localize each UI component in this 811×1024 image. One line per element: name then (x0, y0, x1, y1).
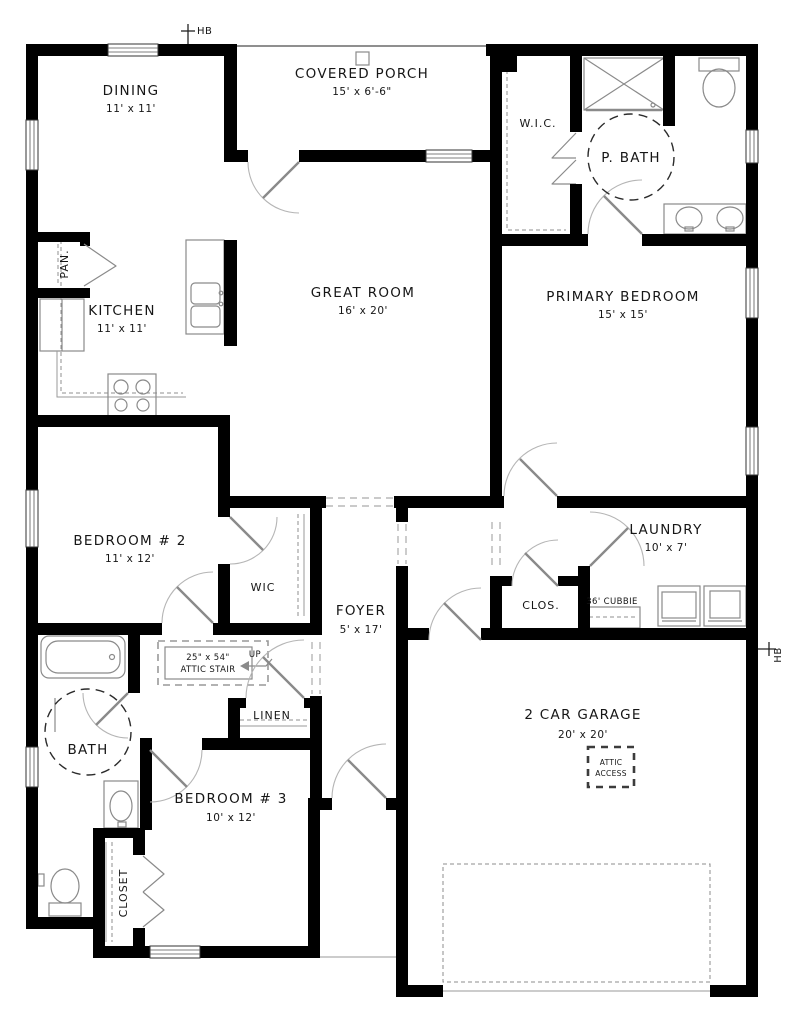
room-dims-bedroom2: 11' x 12' (105, 553, 155, 565)
room-label-primary-bedroom: PRIMARY BEDROOM (546, 289, 699, 305)
room-label-bedroom2: BEDROOM # 2 (73, 533, 186, 549)
door-swing-primary-bath (588, 180, 642, 234)
door-swing-front-entry (332, 744, 386, 798)
wall (213, 623, 322, 635)
door-swing-bedroom2 (162, 572, 213, 623)
label-cubbie: 36' CUBBIE (586, 597, 638, 607)
wall (93, 829, 105, 958)
label-attic-stair-dims: 25" x 54" (186, 653, 230, 663)
double-vanity (664, 204, 746, 234)
wall (310, 696, 322, 810)
room-label-great-room: GREAT ROOM (311, 285, 415, 301)
wall (228, 698, 246, 708)
attic-stair-unit (158, 641, 268, 685)
room-label-bath: BATH (67, 742, 108, 758)
wall (26, 44, 38, 929)
cubbie-bench (586, 607, 640, 628)
wic-shelving (507, 70, 566, 230)
room-dims-laundry: 10' x 7' (645, 542, 688, 554)
wall (396, 985, 443, 997)
primary-toilet (699, 58, 739, 107)
wall (224, 240, 237, 346)
window (26, 120, 38, 170)
bathtub (41, 636, 125, 678)
wall (202, 738, 322, 750)
room-dims-foyer: 5' x 17' (340, 624, 383, 636)
range-stove (108, 374, 156, 416)
wall (663, 56, 675, 126)
wall (490, 576, 502, 640)
wall (558, 576, 590, 586)
refrigerator (40, 299, 84, 351)
room-label-bedroom3: BEDROOM # 3 (174, 791, 287, 807)
wall (133, 828, 145, 855)
wall (710, 985, 758, 997)
room-label-primary-bath: P. BATH (601, 150, 661, 166)
room-label-dining: DINING (103, 83, 160, 99)
hose-bib-label-top: HB (197, 26, 212, 37)
wall (218, 427, 230, 508)
toilet-paper-holder (38, 874, 44, 886)
shower (584, 58, 664, 110)
window (26, 490, 38, 547)
label-attic-stair: ATTIC STAIR (180, 665, 235, 675)
wall (93, 946, 320, 958)
window (26, 747, 38, 787)
wall (310, 508, 322, 635)
door-swing-laundry (590, 512, 644, 566)
porch-post (356, 52, 369, 65)
wall (218, 508, 230, 517)
kitchen-sink-counter (186, 240, 224, 334)
wall (490, 234, 588, 246)
room-dims-great-room: 16' x 20' (338, 305, 388, 317)
room-label-linen: LINEN (253, 709, 291, 722)
room-label-covered-porch: COVERED PORCH (295, 66, 429, 82)
label-attic-access-1: ATTIC (600, 758, 623, 767)
door-swing-porch (248, 162, 299, 213)
room-dims-garage: 20' x 20' (558, 729, 608, 741)
wall (396, 628, 429, 640)
wall (26, 623, 162, 635)
door-swing-pantry (84, 244, 116, 286)
door-swing-primary-bedroom (504, 443, 557, 496)
wall (93, 828, 140, 838)
room-label-wic-bedroom2: WIC (251, 581, 276, 594)
wall (642, 234, 758, 246)
wall (128, 623, 140, 693)
hall-vanity (104, 781, 138, 828)
room-label-bedroom3-closet: CLOSET (117, 869, 130, 918)
cased-opening-foyer-bed-hall (312, 642, 320, 694)
room-label-wic-primary: W.I.C. (519, 117, 556, 130)
wall (218, 496, 326, 508)
washer (658, 586, 700, 626)
cased-opening-foyer-hall (398, 524, 406, 564)
wall (26, 415, 230, 427)
floor-plan-drawing: HB HB DINING 11' x 11' COVERED PORCH 15'… (0, 0, 811, 1024)
dryer (704, 586, 746, 626)
wall (224, 150, 248, 162)
wall (396, 640, 408, 997)
wall (133, 928, 145, 958)
hose-bib-label-right: HB (773, 647, 784, 662)
wall (80, 232, 90, 246)
wic-double-doors (552, 133, 576, 184)
wall (299, 150, 426, 162)
window (426, 150, 472, 162)
wall (486, 44, 758, 56)
room-label-pantry: PAN. (58, 249, 71, 278)
bedroom3-closet-rod (106, 842, 112, 942)
hall-toilet (49, 869, 81, 916)
bedroom2-wic-shelf (298, 514, 304, 616)
door-swing-hall-closet (512, 540, 558, 586)
wall (497, 56, 517, 72)
room-dims-bedroom3: 10' x 12' (206, 812, 256, 824)
garage-door (443, 864, 710, 982)
wall (490, 56, 502, 508)
door-swing-bath (83, 693, 128, 738)
room-dims-kitchen: 11' x 11' (97, 323, 147, 335)
room-label-kitchen: KITCHEN (88, 303, 156, 319)
window (150, 946, 200, 958)
wall (570, 56, 582, 132)
wall (224, 44, 237, 162)
walls (26, 44, 758, 997)
label-up: UP (249, 650, 261, 660)
wall (490, 496, 504, 508)
wall (26, 917, 96, 929)
bifold-closet-doors (143, 856, 164, 927)
wall (394, 496, 490, 508)
cased-opening-hall-laundry (492, 522, 500, 568)
room-dims-covered-porch: 15' x 6'-6" (332, 86, 392, 98)
wall (308, 805, 320, 958)
window (746, 268, 758, 318)
window (108, 44, 158, 56)
door-swing-bedroom2-wic (230, 517, 277, 564)
room-dims-dining: 11' x 11' (106, 103, 156, 115)
cased-opening-great-room-foyer (326, 498, 394, 506)
hose-bib-marker-top (181, 24, 195, 44)
door-swing-garage (429, 588, 481, 640)
room-label-foyer: FOYER (336, 603, 386, 619)
wall (481, 628, 758, 640)
wall (557, 496, 758, 508)
window (746, 130, 758, 163)
attic-access-panel (588, 747, 634, 787)
window (746, 427, 758, 475)
room-label-laundry: LAUNDRY (629, 522, 702, 538)
wall (396, 508, 408, 522)
label-attic-access-2: ACCESS (595, 769, 627, 778)
wall (746, 44, 758, 997)
room-dims-primary-bedroom: 15' x 15' (598, 309, 648, 321)
room-label-garage: 2 CAR GARAGE (524, 707, 641, 723)
door-swing-linen (246, 640, 304, 698)
wall (38, 288, 90, 298)
room-label-hall-closet: CLOS. (522, 599, 560, 612)
floor-plan-page: HB HB DINING 11' x 11' COVERED PORCH 15'… (0, 0, 811, 1024)
